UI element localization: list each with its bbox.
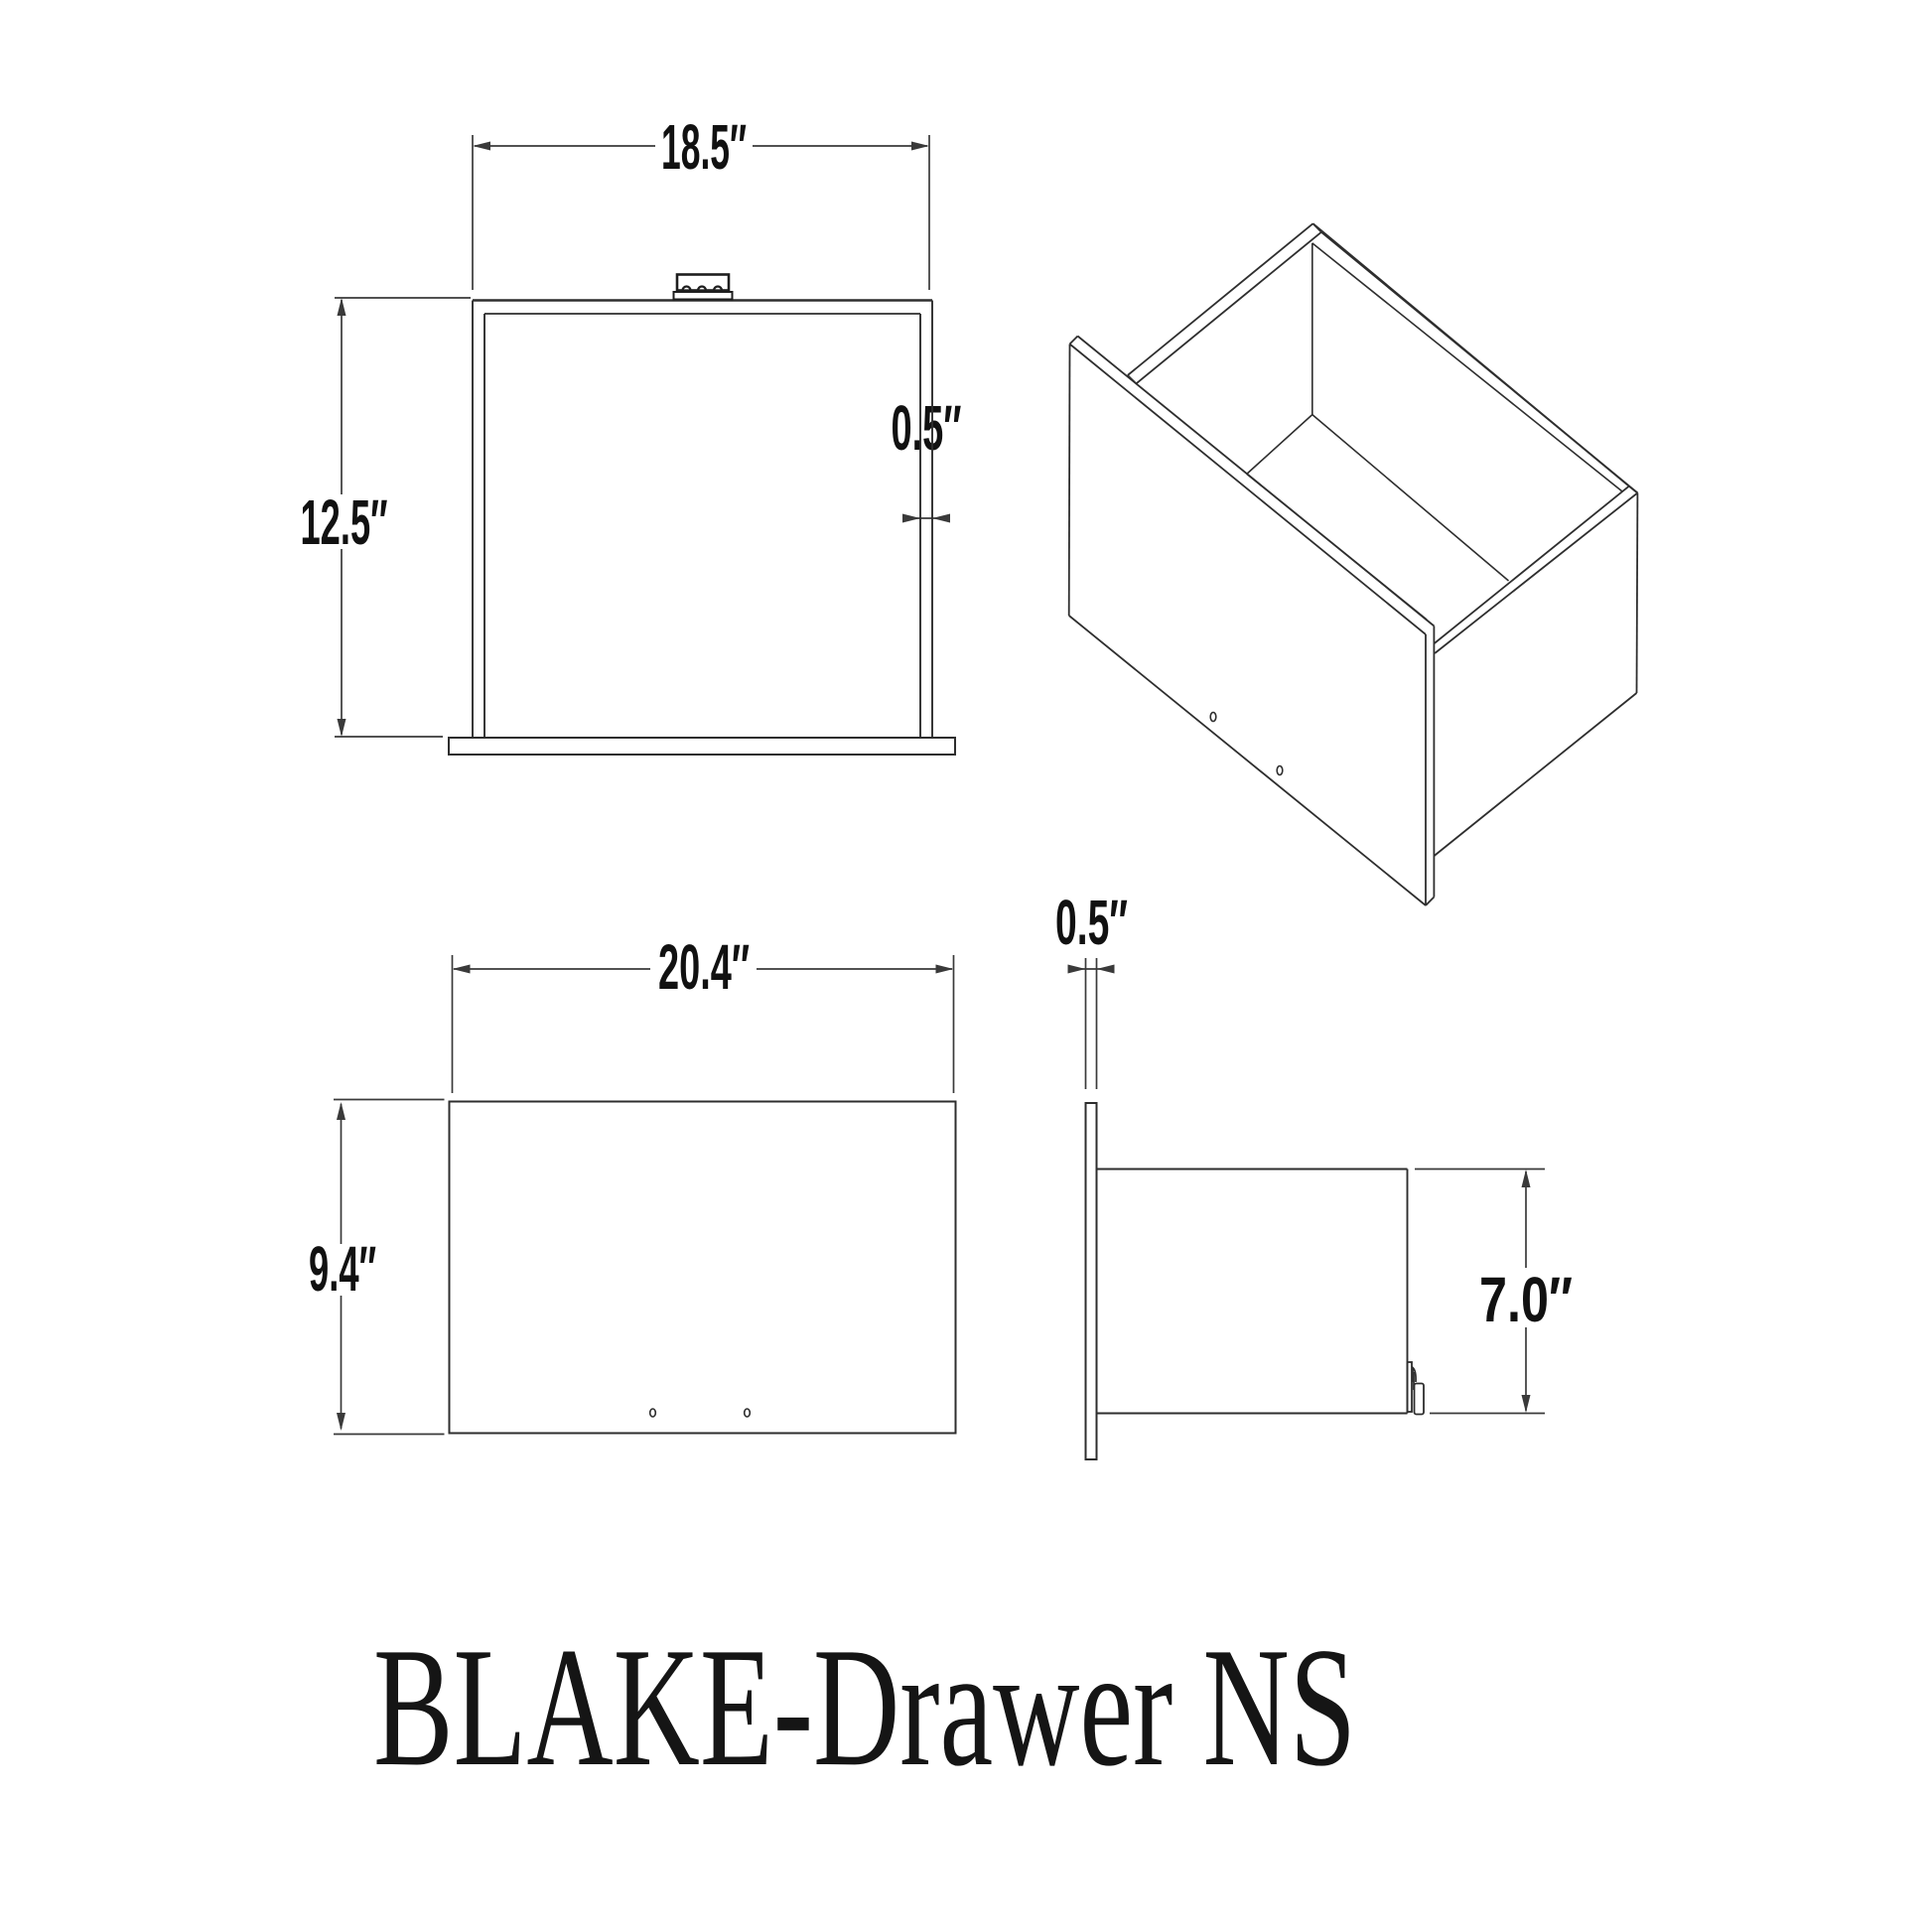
svg-text:12.5″: 12.5″ xyxy=(301,486,388,558)
svg-text:20.4″: 20.4″ xyxy=(658,931,750,1003)
svg-text:BLAKE-Drawer NS: BLAKE-Drawer NS xyxy=(373,1613,1356,1802)
svg-text:0.5″: 0.5″ xyxy=(892,392,962,464)
svg-text:18.5″: 18.5″ xyxy=(661,111,747,183)
svg-text:9.4″: 9.4″ xyxy=(309,1233,376,1305)
svg-text:7.0″: 7.0″ xyxy=(1479,1264,1573,1335)
svg-text:0.5″: 0.5″ xyxy=(1055,887,1128,958)
